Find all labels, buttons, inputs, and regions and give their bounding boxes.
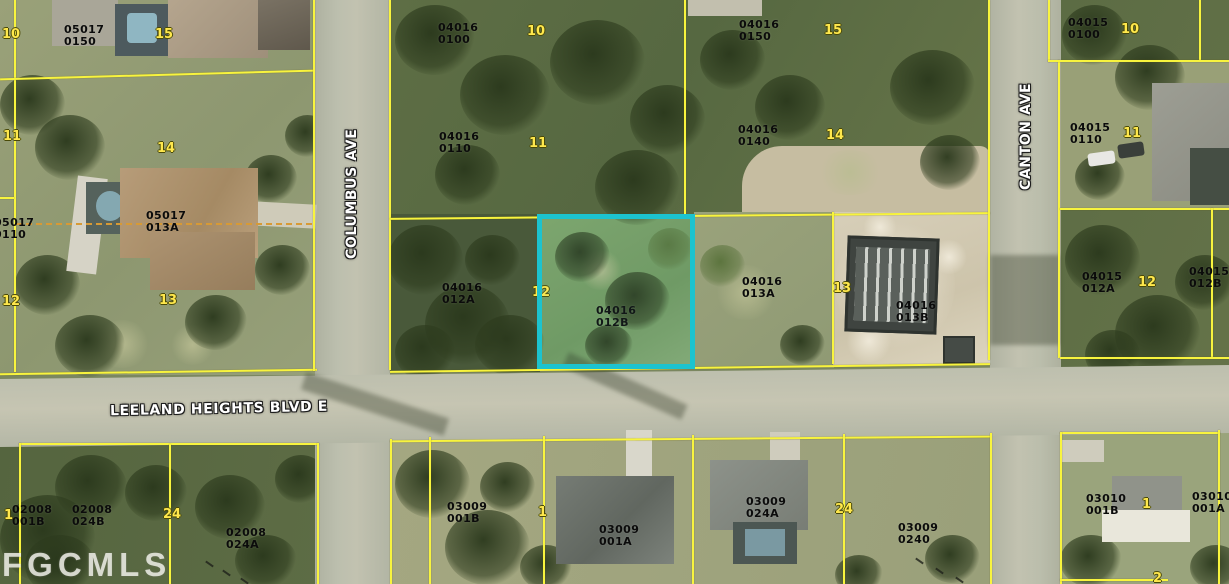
parcel-label: 04016 0150 — [739, 19, 779, 43]
parcel-label: 05017 0150 — [64, 24, 104, 48]
highlighted-parcel-outline — [537, 214, 695, 369]
parcel-label: 04016 0140 — [738, 124, 778, 148]
parcel-map-aerial: COLUMBUS AVE CANTON AVE LEELAND HEIGHTS … — [0, 0, 1229, 584]
parcel-label: 02008 024B — [72, 504, 112, 528]
lot-number: 15 — [824, 24, 842, 37]
lot-number: 12 — [2, 295, 20, 308]
parcel-label: 03010 001B — [1086, 493, 1126, 517]
watermark-fgcmls: FGCMLS — [2, 546, 171, 584]
lot-number: 11 — [1123, 127, 1141, 140]
parcel-label: 04015 0110 — [1070, 122, 1110, 146]
parcel-label: 02008 001B — [12, 504, 52, 528]
lot-number: 14 — [826, 129, 844, 142]
parcel-label: 03009 024A — [746, 496, 786, 520]
lot-number: 24 — [163, 508, 181, 521]
street-label-canton-ave: CANTON AVE — [1019, 83, 1034, 190]
parcel-label: 04016 013A — [742, 276, 782, 300]
parcel-label: 04015 012B — [1189, 266, 1229, 290]
lot-number: 14 — [157, 142, 175, 155]
parcel-label: 02008 024A — [226, 527, 266, 551]
lot-number: 13 — [833, 282, 851, 295]
parcel-label: 04016 0100 — [438, 22, 478, 46]
parcel-label: 04016 013B — [896, 300, 936, 324]
parcel-label: 03009 001B — [447, 501, 487, 525]
parcel-label: 05017 013A — [146, 210, 186, 234]
parcel-label: 04016 0110 — [439, 131, 479, 155]
lot-number: 11 — [529, 137, 547, 150]
parcel-label: 04015 012A — [1082, 271, 1122, 295]
lot-number: 13 — [159, 294, 177, 307]
parcel-label: 03009 001A — [599, 524, 639, 548]
parcel-label: 04016 012A — [442, 282, 482, 306]
parcel-label: 03009 0240 — [898, 522, 938, 546]
lot-number: 2 — [1153, 572, 1162, 584]
parcel-label: 05017 0110 — [0, 217, 34, 241]
lot-number: 12 — [1138, 276, 1156, 289]
parcel-label: 03010 001A — [1192, 491, 1229, 515]
lot-number: 10 — [2, 28, 20, 41]
lot-number: 24 — [835, 503, 853, 516]
lot-number: 15 — [155, 28, 173, 41]
street-label-columbus-ave: COLUMBUS AVE — [345, 129, 360, 259]
lot-number: 10 — [1121, 23, 1139, 36]
lot-number: 1 — [538, 506, 547, 519]
lot-number: 10 — [527, 25, 545, 38]
parcel-label: 04015 0100 — [1068, 17, 1108, 41]
lot-number: 11 — [3, 130, 21, 143]
lot-number: 1 — [1142, 498, 1151, 511]
